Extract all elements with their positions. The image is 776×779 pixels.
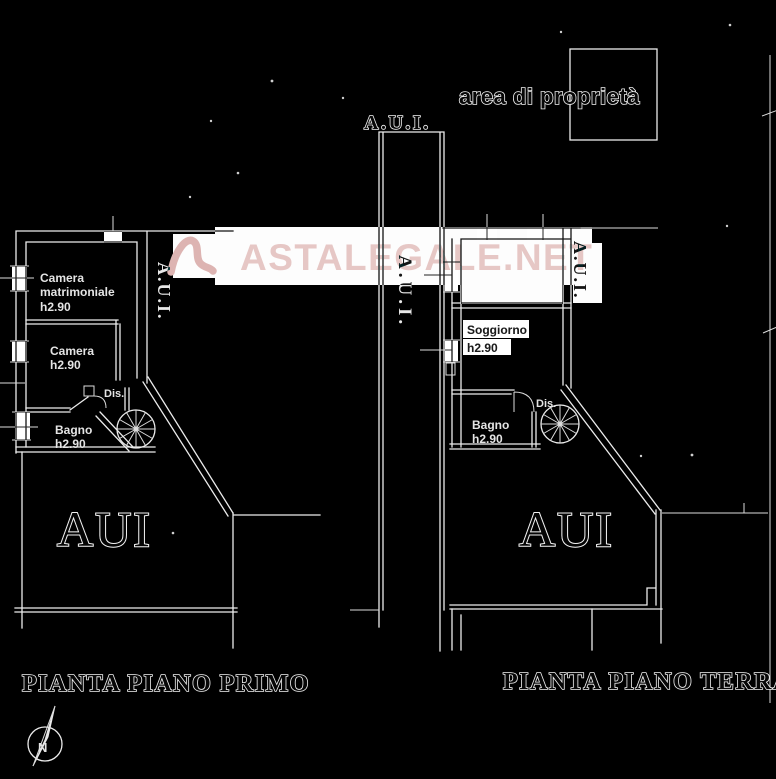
terra-dis-label: Dis.: [536, 398, 556, 410]
primo-caption: PIANTA PIANO PRIMO: [22, 671, 310, 697]
terra-door-symbols: [446, 363, 534, 412]
center-shaft-walls: [379, 132, 444, 651]
camera-matrimoniale-label-line1: Camera: [40, 271, 84, 285]
primo-aui-area-text: AUI: [57, 501, 152, 557]
property-boundary-right: [762, 55, 776, 703]
terra-lower-stub-walls: [452, 609, 592, 650]
camera-label: Camera: [50, 344, 94, 358]
dust-speck: [691, 454, 694, 457]
dust-speck: [172, 532, 175, 535]
aui-left-vertical-label: A.U.I.: [154, 262, 174, 321]
primo-bagno-height-label: h2.90: [55, 437, 86, 451]
aui-right-vertical-label: A.U.I.: [570, 241, 590, 300]
camera-height-label: h2.90: [50, 358, 81, 372]
area-di-proprieta-label: area di proprietà: [459, 84, 640, 109]
north-compass-icon: N: [28, 706, 62, 766]
dust-speck: [189, 196, 191, 198]
dust-speck: [237, 172, 240, 175]
terra-outer-walls: [443, 228, 580, 447]
aui-top-label: A.U.I.: [364, 112, 431, 134]
dust-speck: [640, 455, 642, 457]
terra-aui-area-text: AUI: [519, 501, 614, 557]
terra-stair-diagonals: [561, 385, 660, 514]
dust-speck: [210, 120, 212, 122]
camera-matrimoniale-height-label: h2.90: [40, 300, 71, 314]
primo-dis-label: Dis.: [104, 388, 124, 400]
dust-speck: [271, 80, 274, 83]
soggiorno-height-label: h2.90: [467, 341, 498, 355]
plan-terra-walls: [420, 214, 662, 650]
aui-center-vertical-label: A.U.I.: [394, 255, 415, 328]
primo-dimension-ticks: [0, 216, 113, 440]
primo-bagno-label: Bagno: [55, 423, 92, 437]
floor-plan-scan: ASTALEGALE.NET: [0, 0, 776, 779]
terra-bagno-label: Bagno: [472, 418, 509, 432]
dust-speck: [342, 97, 344, 99]
primo-outer-walls: [16, 231, 233, 453]
dust-speck: [726, 225, 728, 227]
compass-needle-axis: [33, 706, 55, 766]
camera-matrimoniale-label-line2: matrimoniale: [40, 285, 115, 299]
terra-bagno-height-label: h2.90: [472, 432, 503, 446]
soggiorno-label: Soggiorno: [467, 323, 527, 337]
terra-caption: PIANTA PIANO TERRA: [503, 669, 776, 695]
terra-dimension-ticks: [420, 214, 543, 362]
primo-spiral-stair-icon: [117, 410, 155, 448]
dust-speck: [729, 24, 732, 27]
drawing-layer: area di proprietà A.U.I. A.U.I. A.U.I. A…: [0, 0, 776, 779]
dust-speck: [560, 31, 562, 33]
compass-north-label: N: [38, 740, 47, 755]
terra-spiral-stair-icon: [541, 405, 579, 443]
